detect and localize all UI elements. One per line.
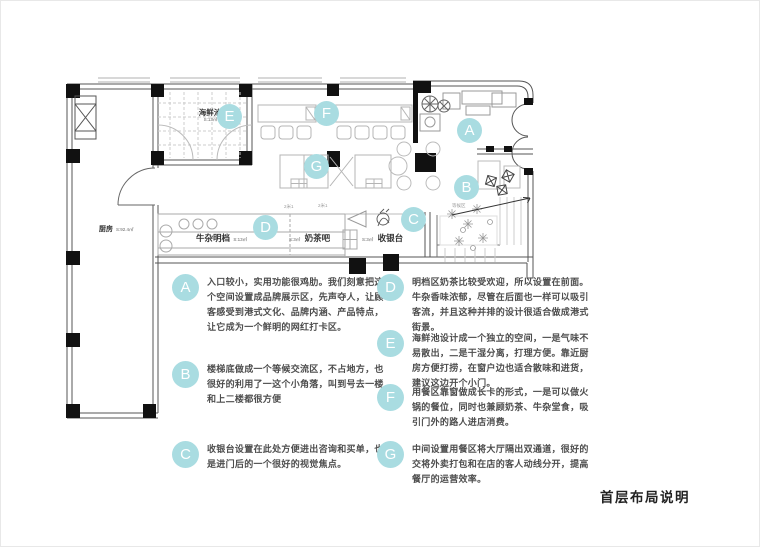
- page-title: 首层布局说明: [600, 486, 690, 506]
- page: 海鲜池 S:13㎡ 厨房 S:92.4㎡ 牛杂明档 S:13㎡ S:3㎡ 奶茶吧…: [0, 0, 760, 547]
- annotation-b: B 楼梯底做成一个等候交流区，不占地方，也很好的利用了一这个小角落，叫到号去一楼…: [172, 361, 386, 407]
- cashier-name: 收银台: [378, 233, 404, 243]
- fan-icon: [422, 96, 450, 112]
- dim-label-left: 2米1: [284, 204, 294, 210]
- cashier-area: S:3㎡: [362, 237, 373, 242]
- annotation-d-badge: D: [377, 274, 404, 301]
- plan-marker-g: G: [304, 154, 329, 179]
- annotation-b-text: 楼梯底做成一个等候交流区，不占地方，也很好的利用了一这个小角落，叫到号去一楼和上…: [207, 362, 386, 407]
- annotation-f: F 用餐区靠窗做成长卡的形式，一是可以做火锅的餐位，同时也兼顾奶茶、牛杂堂食，吸…: [377, 384, 591, 430]
- plan-marker-e: E: [217, 104, 242, 129]
- door-frames: [524, 98, 533, 175]
- room-label-kitchen: 厨房 S:92.4㎡: [99, 226, 133, 234]
- room-label-beef-stall: 牛杂明档 S:13㎡: [196, 234, 247, 243]
- annotation-a: A 入口较小，实用功能很鸡肋。我们刻意把这个空间设置成品牌展示区，先声夺人，让顾…: [172, 274, 386, 335]
- plan-marker-b: B: [454, 175, 479, 200]
- room-label-cashier: S:3㎡ 收银台: [362, 234, 403, 243]
- annotation-b-badge: B: [172, 361, 199, 388]
- annotation-e-text: 海鲜池设计成一个独立的空间，一是气味不易散出，二是干湿分离，打理方便。靠近厨房方…: [412, 331, 591, 391]
- annotation-g: G 中间设置用餐区将大厅隔出双通道，很好的交将外卖打包和在店的客人动线分开，提高…: [377, 441, 591, 487]
- dim-label-right: 2米1: [318, 203, 328, 209]
- annotation-d-text: 明档区奶茶比较受欢迎，所以设置在前面。牛杂香味浓郁，尽管在后面也一样可以吸引客流…: [412, 275, 591, 335]
- annotation-c-text: 收银台设置在此处方便进出咨询和买单，也是进门后的一个很好的视觉焦点。: [207, 442, 386, 472]
- kitchen-door: [118, 168, 155, 205]
- annotation-a-badge: A: [172, 274, 199, 301]
- annotation-a-text: 入口较小，实用功能很鸡肋。我们刻意把这个空间设置成品牌展示区，先声夺人，让顾客感…: [207, 275, 386, 335]
- annotation-g-badge: G: [377, 441, 404, 468]
- annotation-f-badge: F: [377, 384, 404, 411]
- window-ticks: [98, 78, 406, 82]
- kitchen-area: S:92.4㎡: [116, 227, 134, 232]
- plan-marker-f: F: [314, 101, 339, 126]
- beef-stall-area: S:13㎡: [233, 237, 247, 242]
- plan-marker-a: A: [457, 118, 482, 143]
- seafood-tank-curves: [158, 125, 252, 160]
- stairs-note-label: 等候区: [452, 203, 466, 209]
- annotation-c-badge: C: [172, 441, 199, 468]
- beef-stall-name: 牛杂明档: [196, 233, 230, 243]
- kitchen-name: 厨房: [99, 226, 113, 233]
- room-label-milk-tea-bar: S:3㎡ 奶茶吧: [289, 234, 330, 243]
- stairs-inner-walls: [437, 215, 500, 257]
- plan-marker-c: C: [401, 207, 426, 232]
- elevator: [75, 96, 96, 139]
- annotation-c: C 收银台设置在此处方便进出咨询和买单，也是进门后的一个很好的视觉焦点。: [172, 441, 386, 472]
- cashier-hand-icon: [377, 209, 389, 226]
- annotation-e-badge: E: [377, 330, 404, 357]
- entrance-doors: [512, 104, 528, 169]
- plan-marker-d: D: [253, 215, 278, 240]
- milk-tea-bar-area: S:3㎡: [289, 237, 300, 242]
- annotation-f-text: 用餐区靠窗做成长卡的形式，一是可以做火锅的餐位，同时也兼顾奶茶、牛杂堂食，吸引门…: [412, 385, 591, 430]
- annotation-g-text: 中间设置用餐区将大厅隔出双通道，很好的交将外卖打包和在店的客人动线分开，提高餐厅…: [412, 442, 591, 487]
- annotation-d: D 明档区奶茶比较受欢迎，所以设置在前面。牛杂香味浓郁，尽管在后面也一样可以吸引…: [377, 274, 591, 335]
- milk-tea-bar-name: 奶茶吧: [305, 233, 331, 243]
- annotation-e: E 海鲜池设计成一个独立的空间，一是气味不易散出，二是干湿分离，打理方便。靠近厨…: [377, 330, 591, 391]
